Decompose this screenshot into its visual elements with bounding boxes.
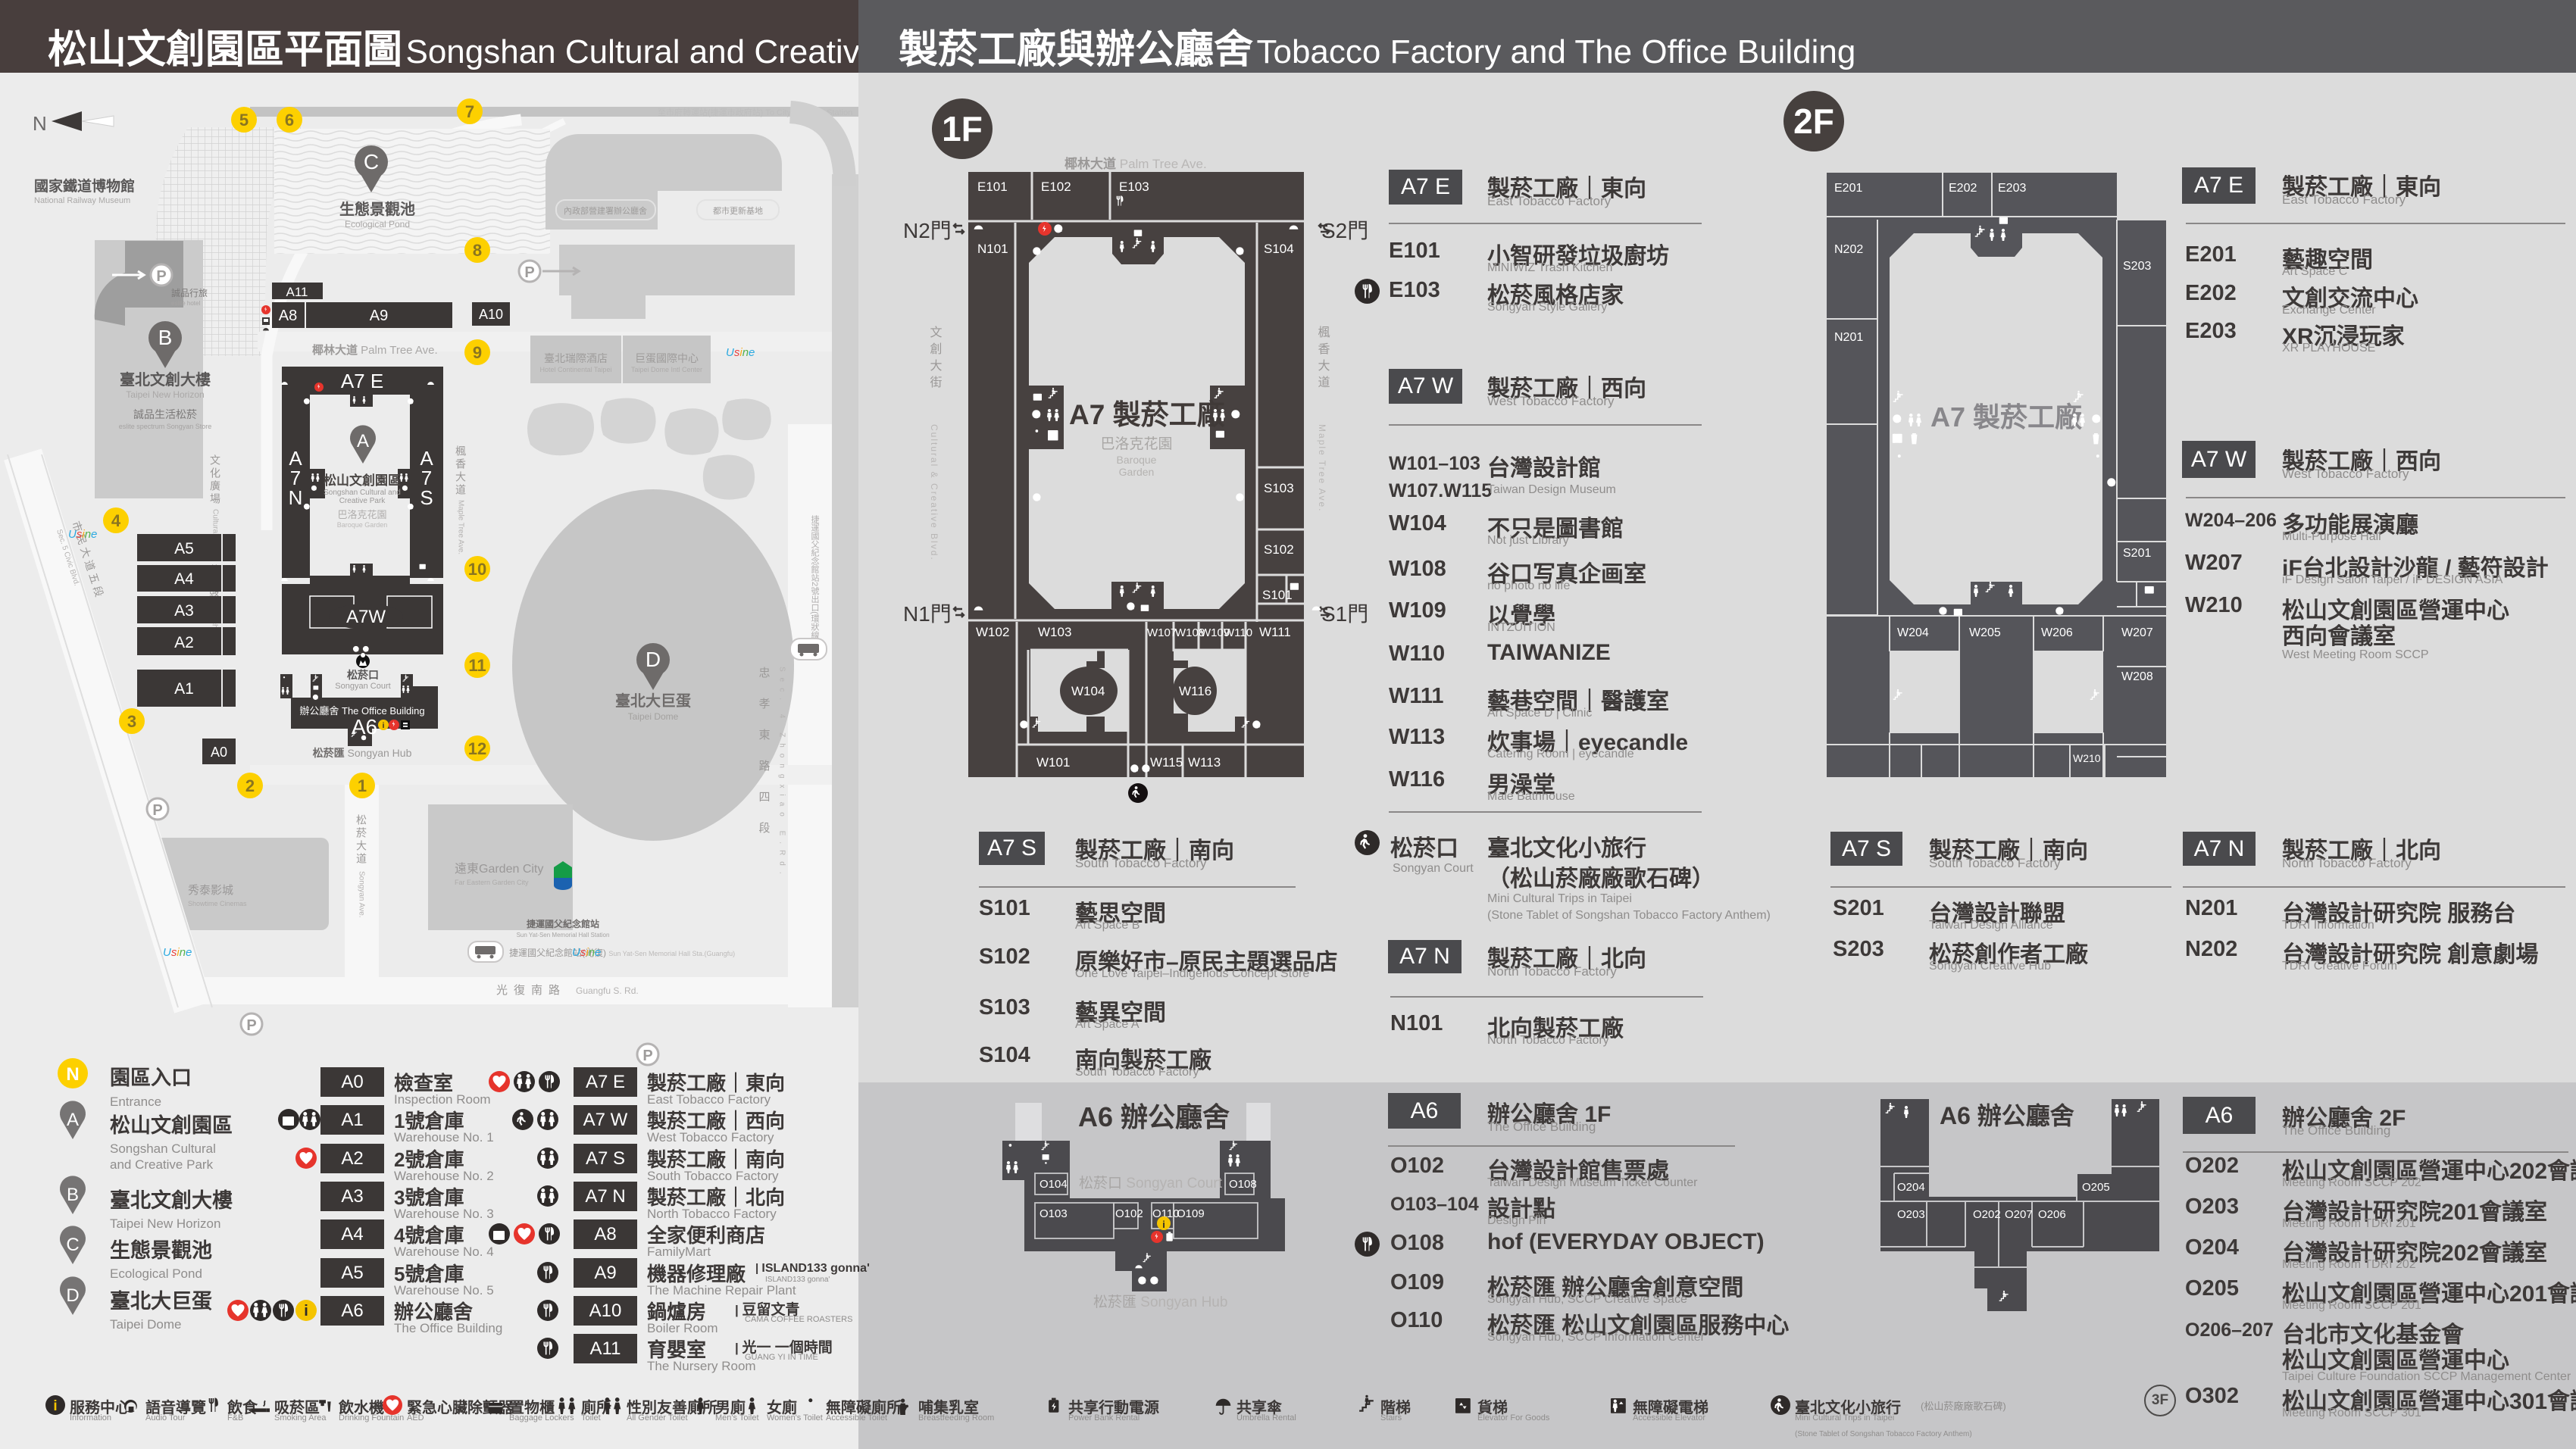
svg-text:11: 11 — [468, 656, 486, 675]
svg-text:3: 3 — [127, 712, 136, 731]
svg-text:A9: A9 — [370, 308, 388, 324]
svg-text:O205: O205 — [2082, 1181, 2110, 1194]
svg-text:C: C — [66, 1235, 79, 1255]
svg-text:Cultural & Creative Blvd.: Cultural & Creative Blvd. — [929, 424, 939, 561]
svg-text:A10: A10 — [479, 307, 503, 322]
svg-text:O207: O207 — [2005, 1208, 2033, 1221]
svg-text:W205: W205 — [1969, 626, 2001, 639]
svg-text:Usine: Usine — [68, 528, 97, 541]
svg-text:忠孝東路四段: 忠孝東路四段 — [758, 667, 771, 853]
svg-text:P: P — [246, 1017, 256, 1034]
svg-text:P: P — [524, 264, 534, 281]
svg-text:S103: S103 — [1264, 481, 1294, 495]
svg-text:A: A — [357, 431, 369, 451]
svg-text:巨蛋國際中心: 巨蛋國際中心 — [635, 352, 699, 364]
svg-text:E202: E202 — [1949, 182, 1977, 195]
svg-text:Sun Yat-Sen Memorial Hall Stat: Sun Yat-Sen Memorial Hall Station — [517, 932, 610, 938]
svg-text:O102: O102 — [1115, 1207, 1143, 1220]
svg-text:S201: S201 — [2123, 547, 2151, 560]
svg-text:園區入口: 園區入口 — [110, 1066, 192, 1089]
svg-text:W208: W208 — [2121, 670, 2153, 683]
svg-text:Songyan Court: Songyan Court — [335, 682, 390, 691]
svg-text:S104: S104 — [1264, 242, 1294, 256]
svg-text:B: B — [67, 1185, 79, 1205]
svg-text:E201: E201 — [1834, 182, 1862, 195]
svg-text:Baroque Garden: Baroque Garden — [337, 521, 388, 529]
svg-text:Songyan Ave.: Songyan Ave. — [358, 871, 366, 918]
svg-text:i: i — [1162, 1219, 1165, 1230]
svg-text:Taipei Dome: Taipei Dome — [628, 711, 679, 722]
svg-text:捷運國父紀念館站2號出口(環狀線): 捷運國父紀念館站2號出口(環狀線) — [810, 514, 820, 642]
svg-text:松山文創園區: 松山文創園區 — [324, 473, 401, 488]
svg-text:eslite hotel: eslite hotel — [171, 300, 200, 307]
svg-text:內政部營建署辦公廳舍: 內政部營建署辦公廳舍 — [564, 205, 647, 216]
svg-text:臺北文創大樓: 臺北文創大樓 — [120, 370, 211, 389]
svg-text:N: N — [33, 112, 47, 135]
svg-text:P: P — [156, 268, 166, 285]
svg-text:Usine: Usine — [572, 946, 601, 959]
svg-text:8: 8 — [473, 241, 482, 260]
svg-text:文化廣場: 文化廣場 — [209, 454, 221, 506]
svg-text:N2門: N2門 — [903, 219, 952, 242]
svg-text:Hotel Continental Taipei: Hotel Continental Taipei — [540, 366, 612, 373]
svg-text:N101: N101 — [977, 242, 1008, 256]
svg-text:E101: E101 — [977, 180, 1008, 194]
svg-text:S102: S102 — [1264, 542, 1294, 557]
svg-text:Taipei New Horizon: Taipei New Horizon — [110, 1216, 220, 1231]
svg-text:Sec. 4 Zhongxiao E.Rd.: Sec. 4 Zhongxiao E.Rd. — [778, 667, 786, 880]
svg-text:N1門: N1門 — [903, 602, 952, 626]
svg-text:E103: E103 — [1119, 180, 1149, 194]
svg-text:Entrance: Entrance — [110, 1095, 161, 1109]
svg-text:松山文創園區: 松山文創園區 — [110, 1113, 233, 1137]
svg-text:臺北大巨蛋: 臺北大巨蛋 — [110, 1290, 212, 1313]
svg-text:臺北大巨蛋: 臺北大巨蛋 — [615, 692, 691, 710]
svg-text:A8: A8 — [279, 308, 297, 324]
svg-text:O203: O203 — [1897, 1208, 1925, 1221]
svg-text:巴洛克花園: 巴洛克花園 — [1100, 436, 1172, 452]
svg-text:B: B — [158, 326, 173, 349]
svg-text:A6: A6 — [352, 715, 377, 739]
svg-text:eslite spectrum Songyan Store: eslite spectrum Songyan Store — [119, 423, 212, 430]
svg-text:A: A — [67, 1110, 79, 1130]
svg-text:D: D — [66, 1285, 79, 1306]
svg-text:N201: N201 — [1834, 331, 1863, 344]
svg-text:O108: O108 — [1229, 1178, 1257, 1191]
svg-text:Songshan Cultural and: Songshan Cultural and — [324, 489, 401, 497]
svg-text:E102: E102 — [1041, 180, 1071, 194]
svg-text:A0: A0 — [211, 745, 227, 760]
svg-text:Usine: Usine — [726, 346, 755, 359]
svg-text:A3: A3 — [174, 602, 194, 620]
svg-text:N: N — [66, 1064, 79, 1085]
svg-text:松菸口 Songyan Court: 松菸口 Songyan Court — [1079, 1175, 1223, 1191]
svg-text:i: i — [383, 722, 385, 730]
svg-text:and Creative Park: and Creative Park — [110, 1157, 214, 1172]
svg-text:10: 10 — [468, 560, 486, 579]
svg-text:A5: A5 — [174, 540, 194, 557]
svg-text:松菸口: 松菸口 — [347, 669, 379, 681]
svg-text:W204: W204 — [1897, 626, 1929, 639]
svg-text:O204: O204 — [1897, 1181, 1925, 1194]
svg-text:E203: E203 — [1998, 182, 2026, 195]
svg-text:遠東Garden City: 遠東Garden City — [455, 862, 543, 876]
svg-text:i: i — [53, 1398, 57, 1414]
svg-text:i: i — [304, 1303, 308, 1319]
svg-text:生態景觀池: 生態景觀池 — [339, 200, 415, 218]
svg-text:6: 6 — [285, 111, 294, 130]
svg-text:臺北文創大樓: 臺北文創大樓 — [110, 1188, 233, 1212]
svg-text:A6 辦公廳舍: A6 辦公廳舍 — [1940, 1102, 2074, 1129]
svg-text:Creative Park: Creative Park — [339, 497, 386, 505]
svg-text:A7W: A7W — [346, 607, 386, 627]
svg-text:生態景觀池: 生態景觀池 — [110, 1238, 212, 1262]
svg-text:都市更新基地: 都市更新基地 — [713, 205, 763, 216]
svg-text:4: 4 — [111, 511, 121, 530]
svg-text:A1: A1 — [174, 680, 194, 698]
svg-text:W101: W101 — [1036, 755, 1070, 770]
svg-text:誠品行旅: 誠品行旅 — [171, 288, 208, 298]
svg-text:P: P — [642, 1048, 652, 1064]
svg-text:W206: W206 — [2041, 626, 2073, 639]
svg-text:楓香大道: 楓香大道 — [1316, 326, 1330, 392]
svg-text:W103: W103 — [1038, 625, 1071, 639]
svg-text:Guangfu S. Rd.: Guangfu S. Rd. — [576, 985, 639, 996]
svg-text:A2: A2 — [174, 634, 194, 651]
svg-text:P: P — [152, 802, 162, 819]
svg-text:W207: W207 — [2121, 626, 2153, 639]
svg-text:Taipei New Horizon: Taipei New Horizon — [126, 389, 204, 400]
svg-text:W116: W116 — [1179, 684, 1211, 698]
svg-text:椰林大道 Palm Tree Ave.: 椰林大道 Palm Tree Ave. — [1064, 156, 1207, 171]
svg-text:5: 5 — [239, 111, 249, 130]
svg-text:A11: A11 — [286, 285, 308, 299]
svg-text:Taipei Dome Intl Center: Taipei Dome Intl Center — [631, 366, 702, 373]
svg-text:Taipei Dome: Taipei Dome — [110, 1317, 182, 1332]
svg-text:松菸匯 Songyan Hub: 松菸匯 Songyan Hub — [1093, 1294, 1227, 1310]
svg-text:A7S: A7S — [420, 447, 433, 509]
svg-text:A7 E: A7 E — [341, 370, 383, 392]
svg-text:Songshan Cultural: Songshan Cultural — [110, 1141, 216, 1156]
svg-text:光復南路: 光復南路 — [496, 984, 566, 997]
svg-text:W110: W110 — [1224, 626, 1252, 639]
svg-text:Showtime Cinemas: Showtime Cinemas — [188, 900, 247, 907]
svg-text:W113: W113 — [1188, 755, 1221, 770]
svg-text:楓香大道: 楓香大道 — [455, 445, 467, 497]
svg-text:椰林大道 Palm Tree Ave.: 椰林大道 Palm Tree Ave. — [312, 343, 438, 357]
svg-text:W210: W210 — [2073, 752, 2101, 764]
svg-text:O104: O104 — [1039, 1178, 1068, 1191]
svg-text:N202: N202 — [1834, 243, 1863, 256]
svg-text:Garden: Garden — [1119, 466, 1155, 478]
svg-text:9: 9 — [473, 343, 482, 362]
svg-text:O206: O206 — [2038, 1208, 2066, 1221]
svg-text:文創大街: 文創大街 — [928, 326, 943, 392]
svg-text:12: 12 — [468, 739, 486, 758]
svg-text:O103: O103 — [1039, 1207, 1068, 1220]
svg-text:臺北瑞際酒店: 臺北瑞際酒店 — [544, 352, 608, 364]
svg-text:W115: W115 — [1150, 755, 1183, 770]
svg-text:Maple Tree Ave.: Maple Tree Ave. — [457, 500, 465, 554]
svg-text:A6 辦公廳舍: A6 辦公廳舍 — [1078, 1101, 1230, 1132]
svg-text:C: C — [364, 150, 379, 173]
svg-text:國家鐵道博物館: 國家鐵道博物館 — [34, 177, 135, 195]
svg-text:1: 1 — [358, 776, 367, 795]
svg-text:W104: W104 — [1071, 684, 1105, 698]
svg-text:S101: S101 — [1262, 588, 1293, 602]
svg-text:W102: W102 — [976, 625, 1009, 639]
svg-text:松菸大道: 松菸大道 — [355, 814, 367, 866]
svg-text:A7 製菸工廠: A7 製菸工廠 — [1069, 398, 1225, 430]
svg-text:Usine: Usine — [163, 946, 192, 959]
svg-text:D: D — [646, 648, 661, 671]
svg-text:Ecological Pond: Ecological Pond — [110, 1266, 202, 1281]
svg-text:A7 製菸工廠: A7 製菸工廠 — [1930, 401, 2082, 433]
svg-text:A4: A4 — [174, 570, 194, 588]
svg-text:松菸匯 Songyan Hub: 松菸匯 Songyan Hub — [313, 747, 412, 759]
svg-text:捷運國父紀念館站: 捷運國父紀念館站 — [527, 918, 599, 929]
svg-text:Baroque: Baroque — [1117, 454, 1157, 466]
svg-text:National Railway Museum: National Railway Museum — [34, 196, 130, 205]
svg-text:Far Eastern Garden City: Far Eastern Garden City — [455, 879, 529, 886]
svg-text:Maple Tree Ave.: Maple Tree Ave. — [1317, 424, 1327, 513]
svg-text:7: 7 — [465, 102, 474, 121]
svg-text:W111: W111 — [1259, 625, 1291, 639]
svg-text:S203: S203 — [2123, 260, 2151, 273]
svg-text:O202: O202 — [1973, 1208, 2001, 1221]
svg-text:Ecological Pond: Ecological Pond — [345, 219, 410, 230]
svg-text:誠品生活松菸: 誠品生活松菸 — [133, 408, 197, 420]
svg-text:巴洛克花園: 巴洛克花園 — [337, 509, 386, 520]
svg-text:2: 2 — [245, 776, 255, 795]
svg-text:W107: W107 — [1147, 626, 1177, 639]
svg-text:O109: O109 — [1177, 1207, 1205, 1220]
svg-text:秀泰影城: 秀泰影城 — [188, 884, 233, 897]
svg-text:A7N: A7N — [289, 447, 303, 509]
